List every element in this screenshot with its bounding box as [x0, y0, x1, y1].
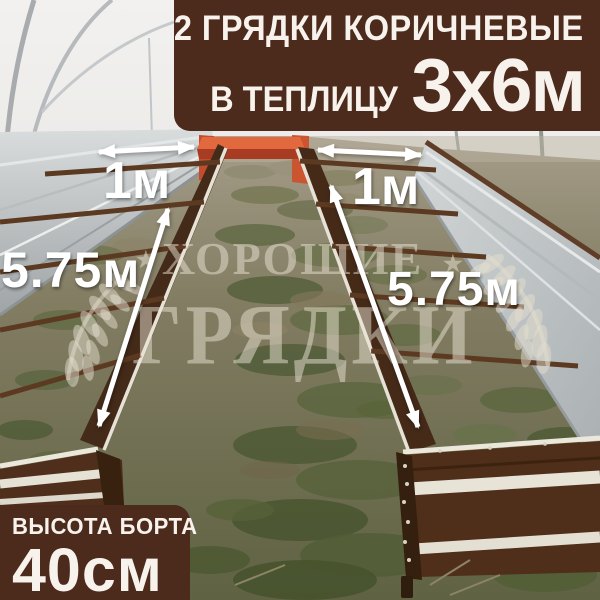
right-bed-length-label: 5.75м [387, 266, 521, 314]
badge-value: 40см [12, 541, 190, 600]
product-image: ХОРОШИЕ ГРЯДКИ ★ ★ [0, 0, 600, 600]
left-bed-width-label: 1м [103, 155, 170, 207]
left-bed-length-label: 5.75м [1, 245, 140, 295]
banner-size-value: 3х6м [411, 47, 584, 124]
title-banner: 2 ГРЯДКИ КОРИЧНЕВЫЕ В ТЕПЛИЦУ 3х6м [174, 0, 600, 131]
right-bed-width-label: 1м [352, 161, 419, 213]
badge-label: ВЫСОТА БОРТА [12, 513, 183, 540]
banner-title-line2: В ТЕПЛИЦУ 3х6м [196, 47, 584, 124]
board-height-badge: ВЫСОТА БОРТА 40см [0, 505, 190, 600]
banner-line2-prefix: В ТЕПЛИЦУ [211, 80, 399, 120]
banner-title-line1: 2 ГРЯДКИ КОРИЧНЕВЫЕ [174, 9, 584, 49]
